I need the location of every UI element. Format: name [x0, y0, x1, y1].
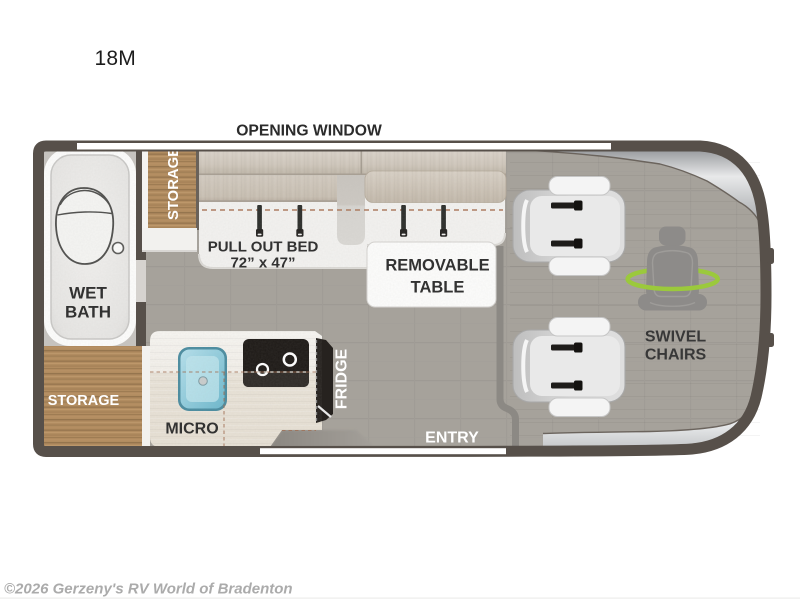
svg-text:STORAGE: STORAGE	[166, 147, 182, 220]
svg-text:STORAGE: STORAGE	[48, 393, 120, 409]
svg-text:©2026 Gerzeny's RV World of Br: ©2026 Gerzeny's RV World of Bradenton	[4, 581, 293, 598]
svg-text:CHAIRS: CHAIRS	[645, 347, 707, 364]
svg-text:ENTRY: ENTRY	[425, 430, 479, 447]
svg-text:FRIDGE: FRIDGE	[334, 348, 351, 409]
svg-text:SWIVEL: SWIVEL	[645, 329, 707, 346]
svg-text:18M: 18M	[95, 47, 136, 70]
svg-text:OPENING WINDOW: OPENING WINDOW	[236, 123, 382, 140]
